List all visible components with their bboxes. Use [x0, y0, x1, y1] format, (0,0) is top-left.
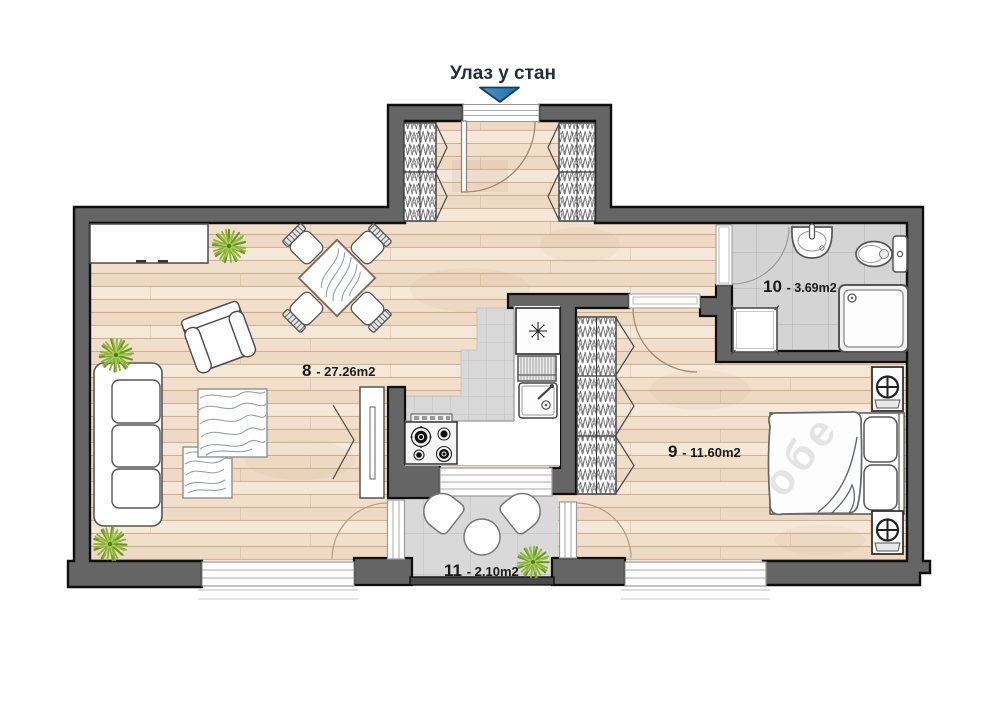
- svg-text:9 - 11.60m2: 9 - 11.60m2: [668, 442, 741, 461]
- svg-text:Улаз у стан: Улаз у стан: [450, 63, 556, 84]
- svg-text:8 - 27.26m2: 8 - 27.26m2: [302, 361, 375, 380]
- svg-text:11 - 2.10m2: 11 - 2.10m2: [444, 561, 519, 580]
